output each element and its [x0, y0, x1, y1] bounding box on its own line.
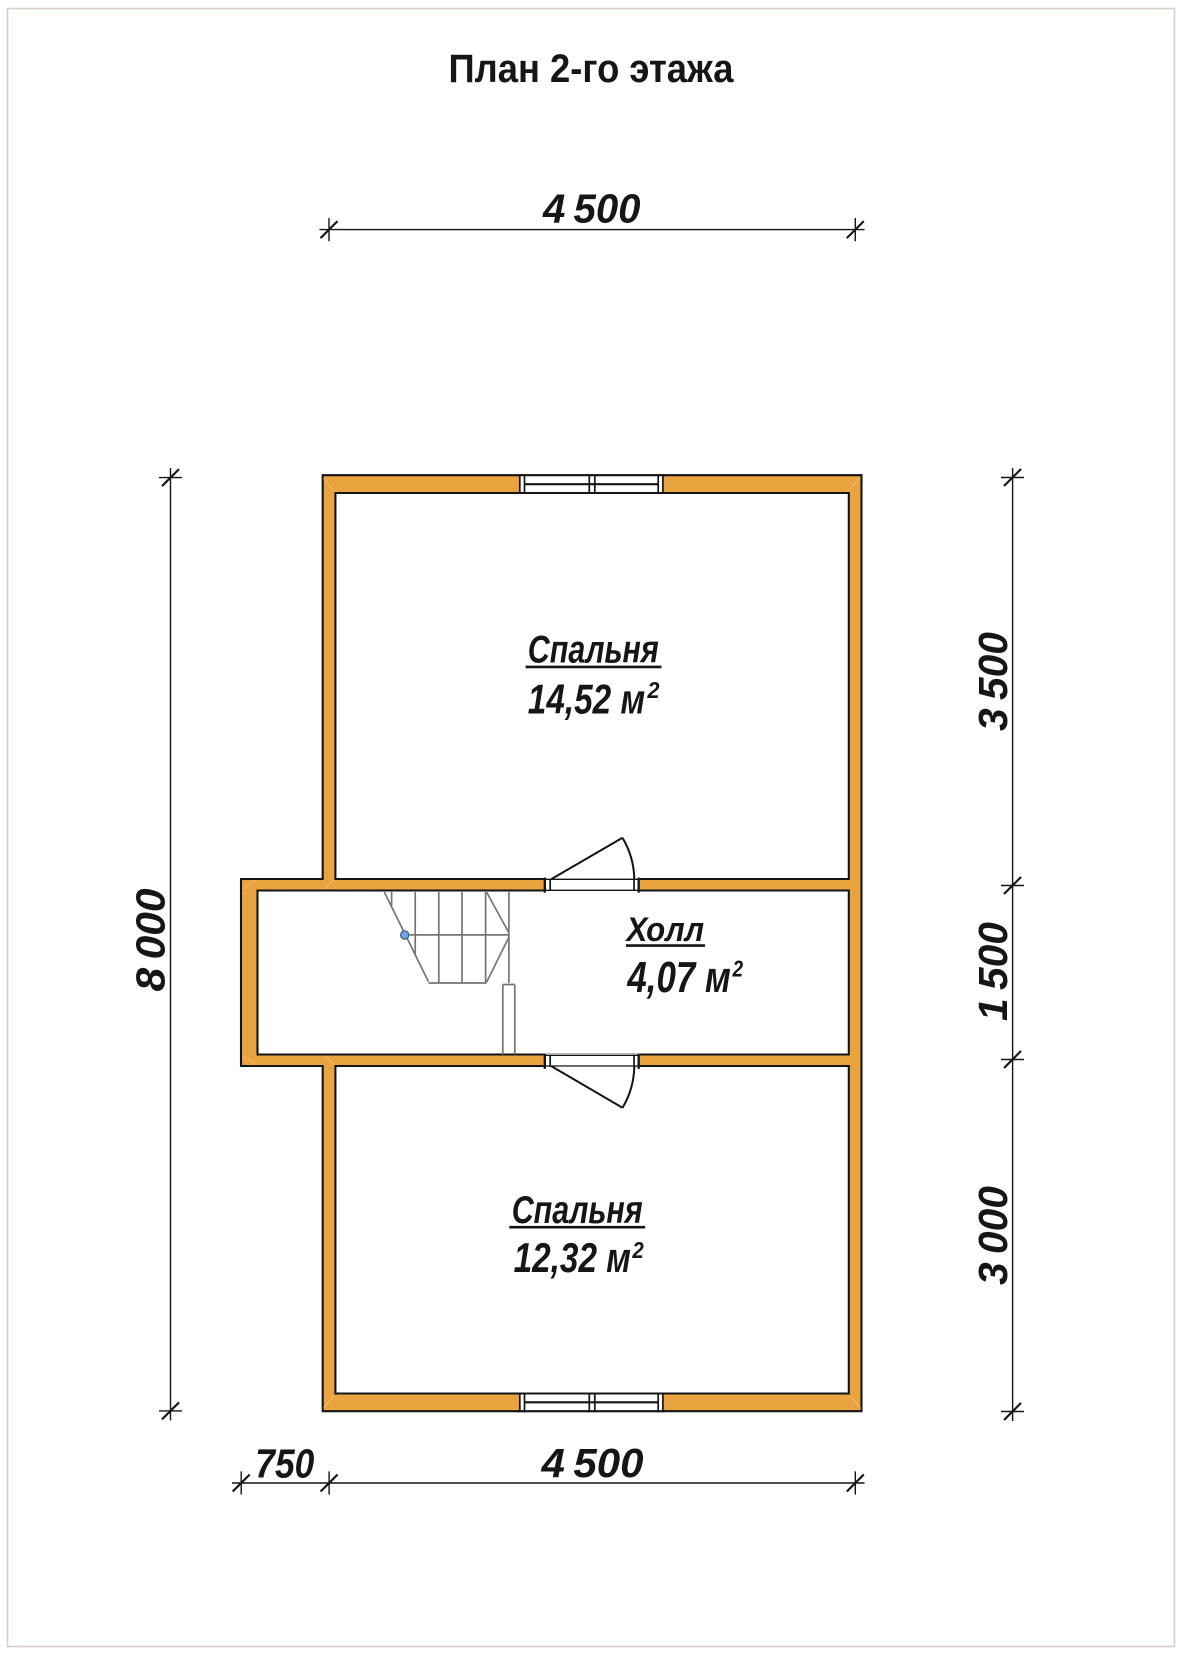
svg-text:4 500: 4 500 — [542, 186, 641, 232]
svg-text:Холл: Холл — [625, 911, 704, 949]
svg-text:Спальня: Спальня — [512, 1189, 643, 1232]
svg-text:План 2-го этажа: План 2-го этажа — [449, 47, 735, 91]
svg-text:4 500: 4 500 — [540, 1440, 643, 1486]
svg-text:3 500: 3 500 — [970, 632, 1016, 731]
svg-text:2: 2 — [632, 1237, 644, 1263]
svg-text:2: 2 — [732, 956, 744, 982]
svg-text:12,32 м: 12,32 м — [514, 1234, 631, 1281]
svg-text:Спальня: Спальня — [528, 629, 659, 672]
svg-text:4,07 м: 4,07 м — [627, 954, 731, 1002]
svg-text:750: 750 — [255, 1441, 314, 1487]
svg-text:3 000: 3 000 — [970, 1186, 1016, 1285]
svg-text:8 000: 8 000 — [128, 888, 174, 991]
svg-text:1 500: 1 500 — [970, 922, 1016, 1021]
svg-text:2: 2 — [646, 677, 659, 703]
svg-text:14,52 м: 14,52 м — [528, 675, 645, 722]
